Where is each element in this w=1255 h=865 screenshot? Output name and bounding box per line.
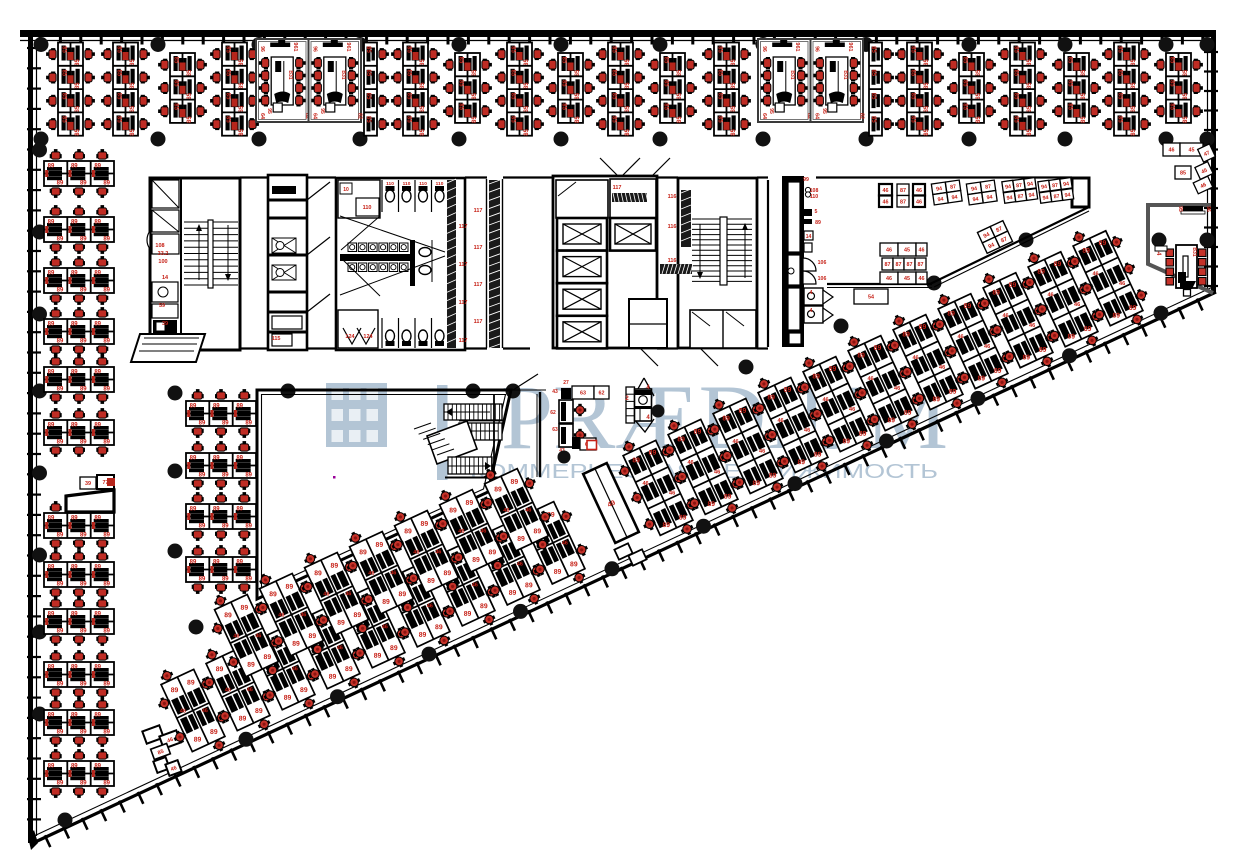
svg-text:85: 85 [870,116,876,123]
svg-text:85: 85 [1027,59,1033,66]
svg-text:39: 39 [85,481,91,487]
svg-text:117: 117 [474,282,483,288]
svg-text:89: 89 [71,423,78,429]
svg-text:89: 89 [48,423,55,429]
svg-text:89: 89 [48,220,55,226]
svg-text:94: 94 [986,195,993,202]
svg-text:85: 85 [1013,46,1019,53]
svg-text:85: 85 [1081,69,1087,76]
svg-text:87: 87 [900,199,906,205]
svg-text:46: 46 [233,634,239,640]
svg-text:94: 94 [972,197,979,204]
svg-text:85: 85 [1117,93,1123,100]
svg-text:89: 89 [769,473,777,480]
svg-text:89: 89 [494,486,502,493]
svg-text:117: 117 [474,208,483,214]
svg-text:89: 89 [71,271,78,277]
svg-text:116: 116 [668,258,677,264]
svg-text:85: 85 [420,105,426,112]
svg-text:89: 89 [359,549,367,556]
svg-text:82: 82 [859,113,865,119]
svg-text:89: 89 [103,237,110,243]
svg-text:95: 95 [768,108,774,114]
svg-text:46: 46 [413,550,419,556]
svg-text:4: 4 [810,308,813,314]
svg-text:85: 85 [1013,116,1019,123]
svg-text:85: 85 [677,92,683,99]
svg-text:89: 89 [345,666,353,673]
svg-text:85: 85 [924,128,930,135]
svg-text:85: 85 [524,128,530,135]
svg-text:85: 85 [575,69,581,76]
svg-text:89: 89 [94,612,101,618]
svg-text:110: 110 [810,194,818,200]
svg-text:85: 85 [561,103,567,110]
svg-text:116: 116 [668,194,677,200]
svg-text:110: 110 [403,181,411,187]
svg-text:85: 85 [239,82,245,89]
svg-text:89: 89 [103,730,110,736]
svg-text:46: 46 [525,507,531,513]
svg-text:89: 89 [679,514,687,521]
svg-text:89: 89 [435,624,443,631]
svg-text:85: 85 [75,59,81,66]
svg-text:46: 46 [1119,281,1125,287]
svg-text:89: 89 [199,473,206,479]
svg-text:89: 89 [1084,326,1092,333]
svg-text:85: 85 [420,59,426,66]
svg-text:46: 46 [435,549,441,555]
svg-text:89: 89 [80,339,87,345]
svg-text:89: 89 [103,682,110,688]
svg-text:85: 85 [75,105,81,112]
svg-text:85: 85 [524,82,530,89]
svg-text:89: 89 [48,322,55,328]
svg-text:89: 89 [632,457,640,464]
svg-text:124: 124 [345,334,355,340]
svg-text:10: 10 [343,187,349,193]
svg-text:85: 85 [1183,92,1189,99]
svg-text:89: 89 [94,764,101,770]
svg-text:46: 46 [517,561,523,567]
svg-text:46: 46 [1092,271,1098,277]
svg-text:117: 117 [474,319,483,325]
svg-text:89: 89 [337,620,345,627]
svg-text:14: 14 [806,234,812,240]
svg-text:89: 89 [933,396,941,403]
svg-text:108: 108 [155,243,164,249]
svg-text:46: 46 [939,365,945,371]
svg-text:89: 89 [236,560,243,566]
svg-text:46: 46 [1002,313,1008,319]
svg-text:B31: B31 [842,70,848,79]
svg-text:89: 89 [245,473,252,479]
svg-text:89: 89 [767,394,775,401]
svg-text:85: 85 [116,69,122,76]
svg-text:89: 89 [354,612,362,619]
svg-text:46: 46 [225,687,231,693]
svg-text:89: 89 [57,582,64,588]
svg-text:89: 89 [739,408,747,415]
svg-text:89: 89 [80,730,87,736]
svg-text:85: 85 [61,116,67,123]
svg-text:89: 89 [1023,354,1031,361]
svg-text:39: 39 [162,321,168,327]
svg-text:89: 89 [480,603,488,610]
svg-text:85: 85 [611,93,617,100]
svg-text:94: 94 [1027,181,1034,188]
svg-text:89: 89 [1068,333,1076,340]
svg-text:87: 87 [950,184,957,191]
svg-text:46: 46 [503,508,509,514]
svg-text:46: 46 [292,666,298,672]
svg-text:89: 89 [48,764,55,770]
svg-text:89: 89 [331,563,339,570]
svg-text:89: 89 [949,389,957,396]
svg-text:85: 85 [870,93,876,100]
svg-text:961: 961 [345,42,351,51]
svg-text:94: 94 [1041,184,1048,191]
svg-text:89: 89 [103,339,110,345]
svg-text:89: 89 [404,528,412,535]
svg-text:89: 89 [213,560,220,566]
svg-text:89: 89 [94,665,101,671]
svg-text:85: 85 [663,80,669,87]
svg-text:89: 89 [978,375,986,382]
svg-text:89: 89 [57,682,64,688]
svg-text:85: 85 [1180,171,1186,177]
svg-text:4: 4 [810,290,813,296]
svg-text:89: 89 [80,629,87,635]
svg-text:85: 85 [976,92,982,99]
svg-text:82: 82 [357,113,363,119]
svg-text:87: 87 [918,262,924,268]
svg-text:85: 85 [75,128,81,135]
svg-text:961: 961 [794,42,800,51]
svg-text:85: 85 [524,105,530,112]
svg-text:89: 89 [103,181,110,187]
svg-text:89: 89 [57,781,64,787]
svg-text:89: 89 [245,524,252,530]
svg-text:46: 46 [1047,292,1053,298]
svg-text:89: 89 [80,781,87,787]
svg-text:85: 85 [625,82,631,89]
svg-text:85: 85 [187,116,193,123]
svg-text:85: 85 [225,116,231,123]
svg-text:85: 85 [1081,116,1087,123]
svg-text:95: 95 [1177,206,1183,212]
svg-text:89: 89 [489,549,497,556]
svg-text:89: 89 [71,164,78,170]
svg-text:89: 89 [376,542,384,549]
svg-text:85: 85 [61,46,67,53]
svg-text:89: 89 [236,456,243,462]
svg-text:961: 961 [847,42,853,51]
svg-text:89: 89 [71,764,78,770]
svg-text:89: 89 [71,665,78,671]
svg-text:85: 85 [1131,128,1137,135]
svg-text:85: 85 [420,128,426,135]
svg-text:64: 64 [312,113,318,120]
svg-text:89: 89 [753,480,761,487]
svg-text:89: 89 [57,339,64,345]
svg-text:115: 115 [272,336,281,342]
svg-text:89: 89 [71,612,78,618]
svg-text:46: 46 [427,603,433,609]
svg-text:85: 85 [1131,105,1137,112]
svg-text:89: 89 [525,582,533,589]
svg-text:85: 85 [187,92,193,99]
svg-text:89: 89 [199,421,206,427]
svg-text:89: 89 [71,565,78,571]
svg-text:85: 85 [458,103,464,110]
svg-text:46: 46 [472,582,478,588]
svg-text:85: 85 [510,46,516,53]
svg-text:89: 89 [171,687,179,694]
svg-text:96: 96 [814,46,820,52]
svg-text:85: 85 [611,69,617,76]
svg-text:85: 85 [731,128,737,135]
svg-text:46: 46 [849,407,855,413]
svg-text:33.2: 33.2 [158,251,169,257]
svg-text:B31: B31 [789,70,795,79]
svg-text:89: 89 [724,493,732,500]
svg-text:87: 87 [885,262,891,268]
svg-text:89: 89 [194,736,202,743]
svg-text:89: 89 [245,421,252,427]
svg-text:27: 27 [563,380,569,386]
svg-text:89: 89 [57,730,64,736]
svg-text:85: 85 [1183,116,1189,123]
svg-text:89: 89 [103,781,110,787]
svg-text:46: 46 [804,428,810,434]
svg-text:89: 89 [509,590,517,597]
svg-text:87: 87 [896,262,902,268]
svg-text:94: 94 [1064,192,1071,199]
svg-text:85: 85 [173,103,179,110]
svg-text:85: 85 [976,116,982,123]
svg-text:89: 89 [992,290,1000,297]
svg-text:89: 89 [224,612,232,619]
svg-text:46: 46 [894,386,900,392]
svg-text:46: 46 [886,276,892,282]
svg-text:89: 89 [103,629,110,635]
svg-text:89: 89 [390,645,398,652]
svg-text:87: 87 [1016,183,1023,190]
svg-text:46: 46 [368,571,374,577]
svg-text:89: 89 [449,507,457,514]
svg-text:110: 110 [363,205,372,211]
svg-text:46: 46 [714,470,720,476]
svg-text:89: 89 [663,522,671,529]
svg-text:89: 89 [419,632,427,639]
svg-text:89: 89 [71,322,78,328]
svg-text:89: 89 [80,582,87,588]
svg-text:85: 85 [625,59,631,66]
svg-text:89: 89 [888,417,896,424]
svg-text:85: 85 [130,82,136,89]
svg-text:89: 89 [857,352,865,359]
svg-text:46: 46 [337,645,343,651]
svg-text:85: 85 [677,116,683,123]
svg-text:85: 85 [239,128,245,135]
svg-text:89: 89 [964,303,972,310]
svg-text:89: 89 [722,415,730,422]
svg-text:89: 89 [213,456,220,462]
svg-text:89: 89 [241,605,249,612]
svg-text:89: 89 [427,578,435,585]
svg-text:89: 89 [222,524,229,530]
svg-text:85: 85 [406,46,412,53]
svg-text:89: 89 [815,220,821,226]
svg-text:85: 85 [561,80,567,87]
svg-text:89: 89 [80,440,87,446]
svg-text:94: 94 [951,195,958,202]
svg-text:89: 89 [247,662,255,669]
svg-text:85: 85 [561,57,567,64]
svg-text:46: 46 [255,633,261,639]
svg-text:85: 85 [130,59,136,66]
svg-text:89: 89 [874,345,882,352]
svg-text:85: 85 [717,93,723,100]
svg-text:85: 85 [365,46,371,53]
svg-text:64: 64 [259,113,265,120]
svg-text:46: 46 [916,199,922,205]
svg-text:85: 85 [116,116,122,123]
svg-text:85: 85 [61,93,67,100]
svg-text:85: 85 [870,69,876,76]
svg-text:85: 85 [472,69,478,76]
svg-text:89: 89 [48,164,55,170]
svg-text:46: 46 [1029,323,1035,329]
svg-text:85: 85 [61,69,67,76]
svg-text:89: 89 [80,181,87,187]
svg-text:89: 89 [1037,269,1045,276]
svg-text:89: 89 [245,577,252,583]
svg-text:85: 85 [611,116,617,123]
svg-text:89: 89 [1129,305,1137,312]
svg-text:85: 85 [1117,46,1123,53]
svg-text:89: 89 [859,431,867,438]
svg-text:85: 85 [962,103,968,110]
svg-text:64: 64 [761,113,767,120]
svg-text:89: 89 [284,695,292,702]
svg-text:85: 85 [575,116,581,123]
svg-text:85: 85 [472,92,478,99]
svg-text:117: 117 [459,262,468,268]
svg-text:85: 85 [731,105,737,112]
svg-text:94: 94 [1006,195,1013,202]
svg-text:89: 89 [382,599,390,606]
svg-text:89: 89 [103,387,110,393]
svg-text:89: 89 [236,507,243,513]
svg-text:106: 106 [818,260,827,266]
svg-text:89: 89 [48,516,55,522]
svg-text:46: 46 [919,276,925,282]
svg-text:46: 46 [562,540,568,546]
svg-text:89: 89 [48,713,55,719]
svg-text:85: 85 [365,69,371,76]
svg-text:116: 116 [668,224,677,230]
svg-text:117: 117 [613,185,622,191]
svg-text:89: 89 [222,473,229,479]
svg-text:64: 64 [814,113,820,120]
svg-text:89: 89 [80,237,87,243]
svg-text:89: 89 [694,429,702,436]
svg-text:85: 85 [1081,92,1087,99]
svg-text:85: 85 [663,57,669,64]
svg-text:59: 59 [159,303,165,309]
svg-text:110: 110 [419,181,427,187]
svg-text:89: 89 [300,687,308,694]
svg-text:63: 63 [552,427,558,433]
svg-text:89: 89 [784,387,792,394]
svg-text:85: 85 [717,46,723,53]
svg-text:87: 87 [1017,194,1024,201]
svg-text:89: 89 [255,708,263,715]
svg-text:85: 85 [1027,105,1033,112]
svg-text:89: 89 [919,324,927,331]
svg-text:85: 85 [1013,93,1019,100]
svg-text:94: 94 [1028,192,1035,199]
svg-text:87: 87 [1052,183,1059,190]
svg-text:89: 89 [94,220,101,226]
svg-text:62: 62 [599,391,605,397]
svg-text:85: 85 [1013,69,1019,76]
svg-text:87: 87 [1053,194,1060,201]
svg-text:85: 85 [1169,80,1175,87]
svg-text:87: 87 [907,262,913,268]
svg-text:46: 46 [957,334,963,340]
svg-text:46: 46 [867,376,873,382]
svg-text:85: 85 [611,46,617,53]
svg-text:46: 46 [777,418,783,424]
svg-text:117: 117 [459,300,468,306]
svg-text:85: 85 [677,69,683,76]
svg-text:89: 89 [374,653,382,660]
svg-text:89: 89 [222,577,229,583]
svg-text:85: 85 [406,69,412,76]
svg-text:46: 46 [382,624,388,630]
svg-text:45: 45 [904,248,910,254]
svg-text:85: 85 [406,116,412,123]
svg-text:85: 85 [663,103,669,110]
svg-text:46: 46 [458,529,464,535]
svg-text:85: 85 [962,57,968,64]
svg-text:85: 85 [116,93,122,100]
svg-text:124: 124 [363,334,373,340]
svg-text:89: 89 [57,237,64,243]
svg-text:89: 89 [511,479,519,486]
svg-text:85: 85 [225,69,231,76]
svg-text:89: 89 [57,181,64,187]
svg-text:89: 89 [814,452,822,459]
svg-text:89: 89 [239,715,247,722]
svg-text:B31: B31 [340,70,346,79]
svg-text:89: 89 [190,456,197,462]
svg-text:89: 89 [71,713,78,719]
svg-text:110: 110 [436,181,444,187]
svg-text:89: 89 [534,528,542,535]
svg-text:89: 89 [80,387,87,393]
svg-text:89: 89 [80,533,87,539]
svg-text:89: 89 [649,450,657,457]
svg-text:85: 85 [717,69,723,76]
svg-text:96: 96 [761,46,767,52]
svg-text:89: 89 [222,421,229,427]
svg-text:46: 46 [984,344,990,350]
svg-text:85: 85 [962,80,968,87]
